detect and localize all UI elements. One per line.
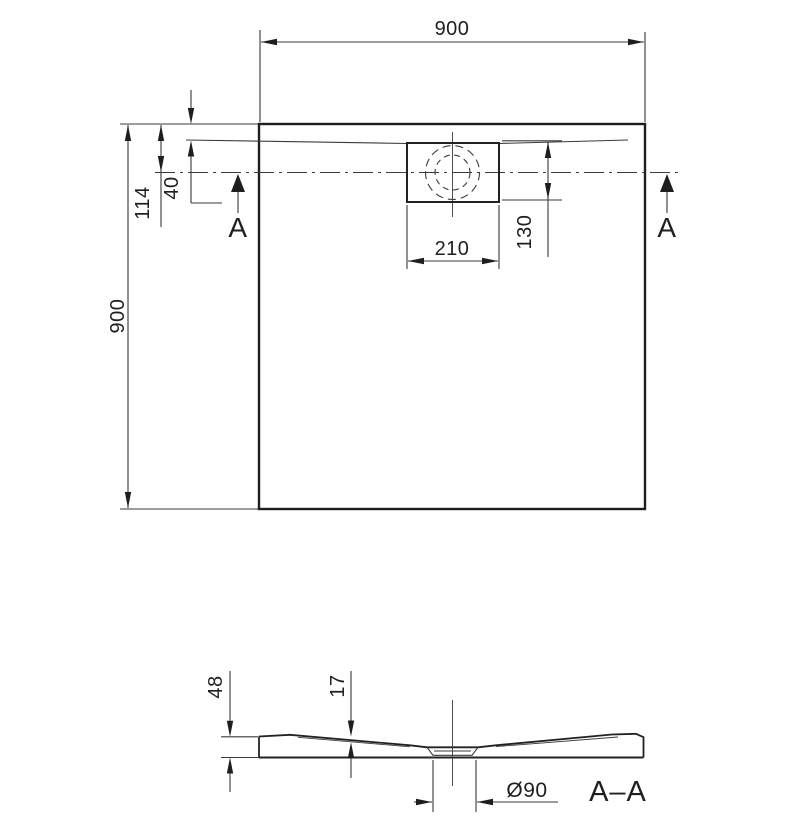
section-marker-right: A <box>657 174 676 243</box>
arrowhead-up <box>158 125 164 141</box>
dim-label-130: 130 <box>514 215 536 250</box>
section-marker-letter: A <box>228 212 247 243</box>
arrowhead-down <box>158 156 164 172</box>
profile-inner-slope-right <box>496 737 618 747</box>
dim-label-17: 17 <box>327 674 349 697</box>
top-view: 900 900 114 40 <box>107 18 683 509</box>
dim-drain-axis-offset: 114 <box>132 125 164 227</box>
dim-drain-cover-width: 210 <box>407 205 499 269</box>
technical-drawing-page: 900 900 114 40 <box>0 0 798 833</box>
arrowhead-left <box>477 799 493 805</box>
tray-outline-top-view <box>259 124 645 509</box>
arrowhead-up <box>545 142 551 158</box>
dim-label-width: 900 <box>435 18 470 40</box>
arrowhead-down <box>188 108 194 124</box>
technical-drawing-canvas: 900 900 114 40 <box>0 0 798 833</box>
arrowhead-down <box>348 721 354 737</box>
dim-drain-cover-depth: 130 <box>502 141 562 257</box>
section-marker-left: A <box>228 174 247 243</box>
arrowhead-right <box>628 39 644 45</box>
section-arrow-up <box>660 174 674 192</box>
arrowhead-up <box>348 742 354 758</box>
section-arrow-up <box>231 174 245 192</box>
dim-label-48: 48 <box>205 675 227 698</box>
dim-label-114: 114 <box>132 186 154 219</box>
dim-label-depth: 900 <box>107 299 129 334</box>
arrowhead-right <box>416 799 432 805</box>
section-marker-letter: A <box>657 212 676 243</box>
profile-inner-slope-left <box>298 737 410 747</box>
dim-label-210: 210 <box>435 238 470 260</box>
dim-rim-offset: 40 <box>161 90 222 203</box>
section-name-label: A–A <box>589 776 647 808</box>
dim-drain-diameter: Ø90 <box>414 760 558 812</box>
arrowhead-up <box>188 141 194 157</box>
dim-label-40: 40 <box>161 176 183 199</box>
dim-left-height: 900 <box>107 125 131 508</box>
arrowhead-right <box>482 258 498 264</box>
arrowhead-up <box>125 125 131 141</box>
arrowhead-down <box>125 492 131 508</box>
arrowhead-down <box>227 721 233 737</box>
arrowhead-up <box>227 758 233 774</box>
dim-label-diameter: Ø90 <box>506 779 547 802</box>
arrowhead-left <box>261 39 277 45</box>
section-view: 48 17 Ø90 A–A <box>205 671 647 812</box>
arrowhead-left <box>408 258 424 264</box>
dim-overall-height: 48 <box>205 671 259 792</box>
dim-top-width: 900 <box>260 18 645 122</box>
dim-inner-depth: 17 <box>327 671 354 778</box>
profile-top-surface <box>259 734 644 758</box>
arrowhead-down <box>545 183 551 199</box>
inner-surface-edge-left <box>186 140 407 144</box>
